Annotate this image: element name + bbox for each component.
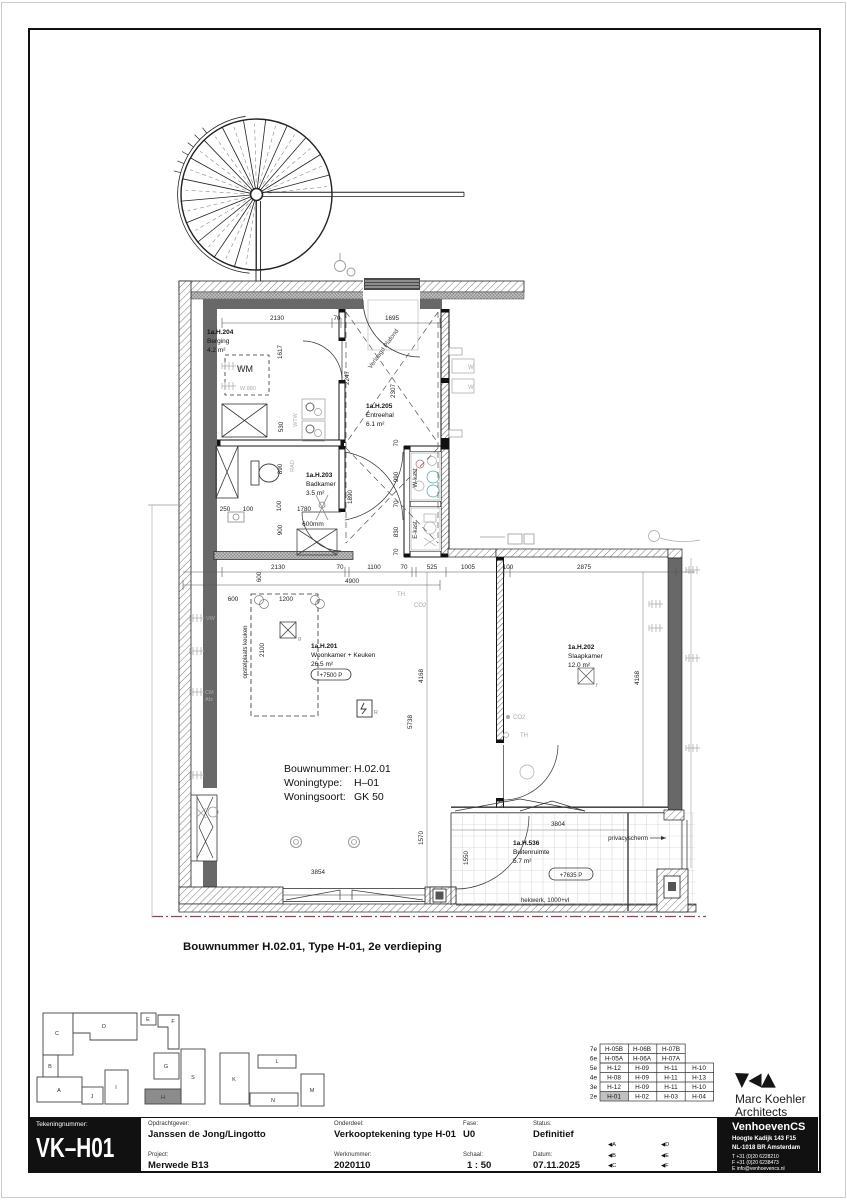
svg-text:H-10: H-10 bbox=[692, 1065, 706, 1072]
svg-text:H-06A: H-06A bbox=[633, 1056, 652, 1063]
svg-text:G: G bbox=[164, 1064, 168, 1070]
svg-text:3e: 3e bbox=[590, 1084, 598, 1091]
svg-text:H-07B: H-07B bbox=[662, 1046, 680, 1053]
svg-text:H-11: H-11 bbox=[664, 1065, 678, 1072]
svg-text:H-12: H-12 bbox=[607, 1084, 621, 1091]
svg-text:H-11: H-11 bbox=[664, 1084, 678, 1091]
svg-text:K: K bbox=[232, 1077, 236, 1083]
svg-text:7e: 7e bbox=[590, 1046, 598, 1053]
svg-text:4e: 4e bbox=[590, 1075, 598, 1082]
svg-text:B: B bbox=[48, 1064, 52, 1070]
svg-text:2e: 2e bbox=[590, 1094, 598, 1101]
svg-text:E: E bbox=[146, 1017, 150, 1023]
svg-text:H-13: H-13 bbox=[692, 1075, 706, 1082]
svg-text:D: D bbox=[102, 1024, 106, 1030]
svg-text:H-03: H-03 bbox=[664, 1094, 678, 1101]
svg-text:H-12: H-12 bbox=[607, 1065, 621, 1072]
svg-text:S: S bbox=[191, 1075, 195, 1081]
svg-text:C: C bbox=[55, 1031, 59, 1037]
svg-text:H-05A: H-05A bbox=[605, 1056, 624, 1063]
svg-text:6e: 6e bbox=[590, 1056, 598, 1063]
svg-text:H-04: H-04 bbox=[692, 1094, 706, 1101]
svg-text:H: H bbox=[161, 1095, 165, 1101]
svg-text:H-11: H-11 bbox=[664, 1075, 678, 1082]
svg-text:H-09: H-09 bbox=[635, 1084, 649, 1091]
svg-text:A: A bbox=[57, 1088, 61, 1094]
svg-text:H-09: H-09 bbox=[635, 1075, 649, 1082]
svg-text:H-06B: H-06B bbox=[633, 1046, 651, 1053]
svg-text:H-09: H-09 bbox=[635, 1065, 649, 1072]
svg-text:H-07A: H-07A bbox=[662, 1056, 681, 1063]
svg-text:H-05B: H-05B bbox=[605, 1046, 623, 1053]
svg-text:H-02: H-02 bbox=[635, 1094, 649, 1101]
svg-text:5e: 5e bbox=[590, 1065, 598, 1072]
svg-text:H-10: H-10 bbox=[692, 1084, 706, 1091]
svg-text:H-01: H-01 bbox=[607, 1094, 621, 1101]
svg-text:N: N bbox=[271, 1098, 275, 1104]
svg-text:H-08: H-08 bbox=[607, 1075, 621, 1082]
svg-text:L: L bbox=[275, 1059, 278, 1065]
svg-text:J: J bbox=[91, 1094, 94, 1100]
svg-text:M: M bbox=[310, 1088, 315, 1094]
